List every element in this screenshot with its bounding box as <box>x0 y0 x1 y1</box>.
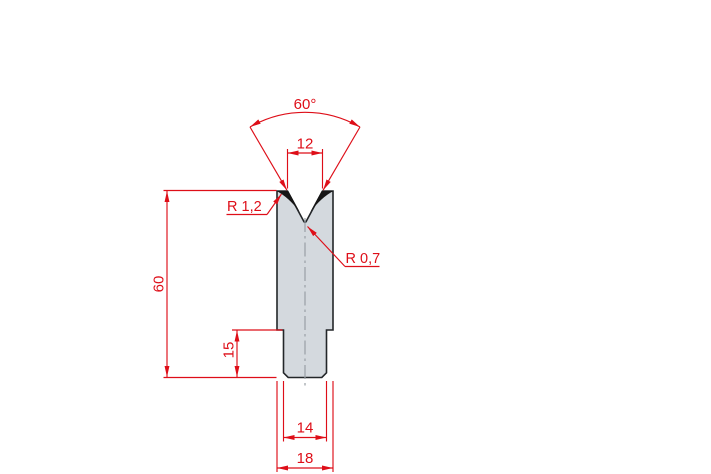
label-shank-width: 14 <box>297 420 314 437</box>
label-body-width: 18 <box>297 450 314 467</box>
label-total-height: 60 <box>151 276 168 293</box>
dimension-shoulder-radius: R 1,2 <box>227 194 282 215</box>
angle-leg-left <box>250 127 287 190</box>
dimension-vee-width: 12 <box>288 136 323 189</box>
label-groove-radius: R 0,7 <box>346 251 381 267</box>
angle-arc <box>250 112 360 127</box>
die-body <box>277 191 334 386</box>
dimension-shank-height: 15 <box>221 330 283 377</box>
label-shoulder-radius: R 1,2 <box>227 199 262 215</box>
v-die-drawing: 60° 12 R 1,2 R 0,7 60 <box>0 0 711 474</box>
dimension-shank-width: 14 <box>284 381 327 442</box>
label-vee-width: 12 <box>297 136 314 153</box>
technical-drawing-canvas: 60° 12 R 1,2 R 0,7 60 <box>0 0 711 474</box>
label-shank-height: 15 <box>221 342 238 359</box>
dimension-total-height: 60 <box>151 191 277 378</box>
label-vee-angle: 60° <box>294 96 317 113</box>
angle-leg-right <box>323 127 360 190</box>
